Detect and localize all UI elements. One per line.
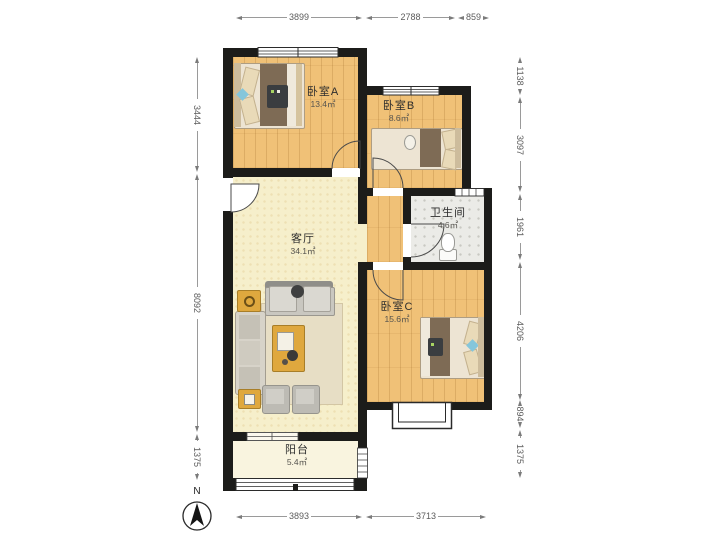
bathroom-window: [455, 189, 484, 197]
dim-value: 1375: [192, 447, 202, 467]
dim-value: 3097: [515, 134, 525, 154]
bay-window: [393, 403, 452, 429]
room-label-bedroom-c: 卧室C 15.6㎡: [357, 301, 437, 325]
dim-value: 2788: [398, 11, 422, 24]
room-area: 13.4㎡: [283, 99, 363, 110]
balcony-hatch: [358, 448, 368, 478]
dim-value: 8092: [192, 293, 202, 313]
bedroom-a-window: [258, 48, 338, 58]
room-name: 卧室B: [367, 100, 431, 113]
dim-top-2: 2788: [366, 11, 455, 24]
balcony-window: [236, 479, 354, 492]
room-label-bathroom: 卫生间 4.6㎡: [412, 207, 484, 231]
dim-top-1: 3899: [236, 11, 362, 24]
dim-value: 3899: [287, 11, 311, 24]
dim-bottom-1: 3893: [236, 510, 362, 523]
room-area: 5.4㎡: [257, 457, 337, 468]
bedroom-a-door-swing: [332, 141, 360, 169]
compass-north-label: N: [189, 486, 205, 497]
dim-right-3: 1961: [513, 194, 527, 260]
dim-right-6: 1375: [513, 430, 527, 478]
room-name: 卧室A: [283, 86, 363, 99]
room-area: 4.6㎡: [412, 220, 484, 231]
room-label-bedroom-b: 卧室B 8.6㎡: [367, 100, 431, 124]
room-area: 8.6㎡: [367, 113, 431, 124]
dim-value: 1138: [515, 66, 525, 85]
entry-door-swing: [231, 184, 259, 212]
bedroom-c-door-swing: [373, 270, 403, 300]
dim-value: 3893: [287, 510, 311, 523]
dim-left-1: 3444: [190, 57, 204, 172]
room-name: 阳台: [257, 444, 337, 457]
room-name: 卫生间: [412, 207, 484, 220]
dim-value: 3444: [192, 104, 202, 124]
dim-bottom-2: 3713: [366, 510, 486, 523]
dim-value: 1375: [515, 444, 525, 464]
dim-value: 4206: [515, 321, 525, 341]
balcony-sliding-door: [247, 433, 298, 441]
dim-value: 859: [464, 11, 483, 24]
dim-right-1: 1138: [513, 57, 527, 95]
bedroom-b-window: [383, 87, 439, 96]
dim-value: 3713: [414, 510, 438, 523]
plan-linework: [0, 0, 720, 540]
room-name: 卧室C: [357, 301, 437, 314]
room-label-bedroom-a: 卧室A 13.4㎡: [283, 86, 363, 110]
room-area: 15.6㎡: [357, 314, 437, 325]
room-name: 客厅: [263, 233, 343, 246]
bedroom-b-door-swing: [373, 158, 403, 188]
dim-value: 894: [515, 406, 525, 421]
dim-top-3: 859: [458, 11, 488, 24]
dim-right-4: 4206: [513, 262, 527, 400]
dim-left-3: 1375: [190, 434, 204, 480]
floor-plan-canvas: 卧室A 13.4㎡ 卧室B 8.6㎡ 卫生间 4.6㎡ 客厅 34.1㎡ 卧室C…: [0, 0, 720, 540]
dim-right-5: 894: [513, 400, 527, 428]
dim-value: 1961: [515, 217, 525, 237]
dim-right-2: 3097: [513, 97, 527, 192]
dim-left-2: 8092: [190, 174, 204, 432]
room-label-living: 客厅 34.1㎡: [263, 233, 343, 257]
room-area: 34.1㎡: [263, 246, 343, 257]
room-label-balcony: 阳台 5.4㎡: [257, 444, 337, 468]
north-compass: [183, 502, 211, 530]
